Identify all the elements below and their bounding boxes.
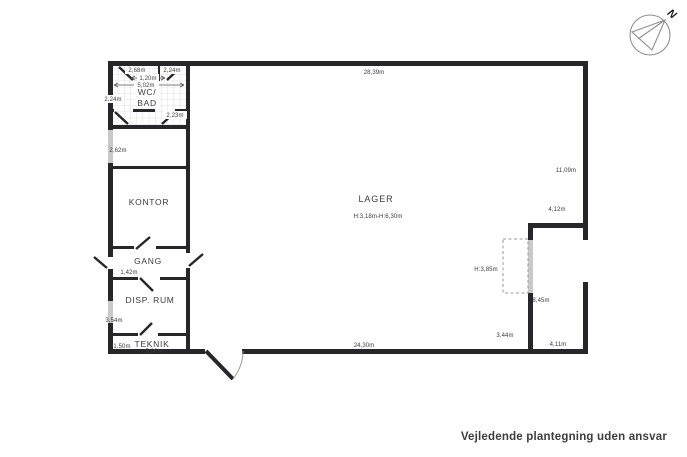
floorplan-page: 28,39m 2,68m 2,24m 1,20m 5,02m 2,24m 2,2… — [0, 0, 687, 457]
dim-wc-top-left: 2,68m — [128, 68, 145, 74]
dim-wc-top-right: 2,24m — [163, 68, 180, 74]
loading-gate — [528, 240, 533, 293]
wall-bay-upper — [528, 223, 533, 240]
compass-needle — [632, 20, 665, 50]
wall-divider-lower — [186, 268, 190, 354]
dim-teknik-height: 1,50m — [113, 344, 130, 350]
wall-gang-bottom-b — [160, 277, 190, 280]
wall-step — [528, 223, 588, 228]
dim-bottom-right: 4,11m — [550, 342, 567, 348]
wall-divider-upper — [186, 61, 190, 253]
room-label-gang: GANG — [134, 256, 162, 266]
lager-height-note: H:3,18m-H:6,30m — [354, 214, 403, 220]
wall-wc-bottom — [108, 125, 190, 129]
dim-inner-right: 8,45m — [532, 298, 549, 304]
dim-lager-right: 3,44m — [496, 333, 513, 339]
wall-wc-mid-a — [108, 109, 114, 112]
dim-gate-height: H:3,85m — [474, 267, 497, 273]
door-entry — [94, 257, 107, 268]
door-kontor — [136, 237, 150, 249]
floorplan-svg: 28,39m 2,68m 2,24m 1,20m 5,02m 2,24m 2,2… — [0, 0, 687, 457]
door-main — [206, 351, 233, 379]
wall-kontor-bottom-a — [108, 246, 134, 249]
window-entry — [108, 130, 113, 163]
footer-disclaimer: Vejledende plantegning uden ansvar — [461, 431, 668, 443]
dim-wc-right: 2,23m — [166, 113, 183, 119]
wall-right-upper — [583, 61, 588, 240]
gate-dashed-outline — [503, 239, 528, 293]
door-gang-lager — [189, 254, 203, 266]
dim-teknik-width: 5,06m — [145, 349, 162, 355]
wall-gang-bottom-a — [108, 277, 138, 280]
dim-gang-width: 1,42m — [120, 270, 137, 276]
wall-kontor-top — [108, 166, 190, 169]
room-label-teknik: TEKNIK — [135, 339, 170, 349]
wall-wc-mid-b — [133, 109, 155, 112]
dim-wc-inner-width: 1,20m — [139, 76, 156, 82]
wall-right-lower — [583, 282, 588, 354]
wall-kontor-bottom-b — [156, 246, 190, 249]
dim-right-upper: 11,09m — [556, 168, 576, 174]
room-label-lager: LAGER — [358, 194, 393, 204]
door-main-swing-arc — [233, 351, 243, 379]
wall-teknik-top-b — [158, 333, 190, 336]
compass — [630, 15, 670, 55]
room-label-kontor: KONTOR — [129, 197, 169, 207]
room-label-wc-line1: WC/ — [138, 87, 157, 97]
dim-wc-left: 2,24m — [104, 97, 121, 103]
room-label-wc-line2: BAD — [137, 98, 157, 108]
wall-teknik-top-a — [108, 333, 138, 336]
door-disp-rum — [140, 278, 153, 291]
dim-lager-bottom: 24,30m — [354, 343, 375, 349]
door-teknik — [140, 323, 152, 335]
dim-entry-left: 2,62m — [109, 148, 126, 154]
dim-top-total: 28,39m — [364, 70, 385, 76]
dim-step-width: 4,12m — [548, 207, 565, 213]
dim-disp-height: 3,54m — [105, 318, 122, 324]
wall-bottom-right — [242, 349, 588, 354]
wall-top — [108, 61, 588, 66]
room-label-disp-rum: DISP. RUM — [125, 295, 174, 305]
north-label: N — [665, 7, 680, 22]
